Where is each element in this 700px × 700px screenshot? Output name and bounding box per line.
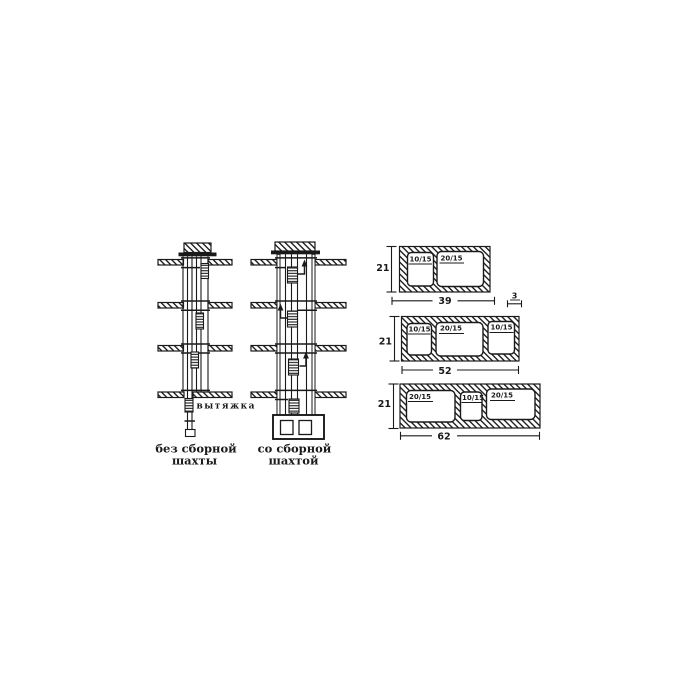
opening-size-label: 10/15 bbox=[410, 256, 432, 264]
dimension-height: 21 bbox=[379, 317, 400, 362]
shaft-cap-block bbox=[184, 243, 211, 253]
floor-slab bbox=[158, 260, 184, 266]
floor-slab bbox=[251, 346, 277, 352]
base-block-opening bbox=[299, 421, 312, 435]
opening-size-label: 20/15 bbox=[491, 392, 513, 400]
caption-with-shaft-line2: шахтой bbox=[269, 454, 319, 468]
shaft-cap-plate bbox=[271, 251, 320, 255]
exhaust-label: вытяжка bbox=[197, 402, 256, 412]
shaft-foot bbox=[186, 430, 196, 437]
dimension-width: 52 bbox=[402, 366, 519, 377]
duct-grille bbox=[201, 264, 209, 279]
ventilation-diagram-figure: вытяжка без сборной шахты bbox=[0, 0, 700, 700]
dimension-width: 39 bbox=[392, 296, 495, 307]
floor-slab bbox=[193, 392, 232, 398]
floor-slab bbox=[251, 260, 277, 266]
duct-grille bbox=[191, 352, 199, 368]
opening-size-label: 10/15 bbox=[491, 324, 513, 332]
dimension-height-label: 21 bbox=[376, 263, 389, 274]
floor-slab bbox=[251, 303, 277, 309]
caption-without-shaft-line2: шахты bbox=[172, 454, 218, 468]
floor-slab bbox=[315, 260, 346, 266]
vent-block-section-52: 10/15 20/15 10/15 21 52 bbox=[379, 317, 519, 377]
opening-size-label: 20/15 bbox=[409, 393, 431, 401]
duct-grille bbox=[288, 267, 298, 283]
dimension-height-label: 21 bbox=[379, 336, 392, 347]
duct-grille bbox=[196, 313, 204, 329]
floor-slab bbox=[208, 260, 232, 266]
wall-thickness-label: 3 bbox=[512, 291, 518, 300]
duct-grille bbox=[289, 399, 299, 413]
shaft-with-collection-duct-diagram: со сборной шахтой bbox=[251, 242, 346, 468]
opening-size-label: 10/15 bbox=[462, 394, 484, 402]
scanned-figure-page: вытяжка без сборной шахты bbox=[0, 0, 700, 700]
vent-block-section-39: 10/15 20/15 21 39 3 bbox=[376, 247, 521, 308]
shaft-cap-block bbox=[275, 242, 315, 251]
dimension-wall-thickness: 3 bbox=[508, 291, 522, 307]
floor-slab bbox=[315, 346, 346, 352]
floor-slab bbox=[158, 392, 184, 398]
dimension-height: 21 bbox=[378, 384, 399, 429]
opening-size-label: 10/15 bbox=[409, 326, 431, 334]
duct-grille bbox=[288, 311, 298, 327]
dimension-width: 62 bbox=[401, 432, 540, 443]
duct-grille bbox=[185, 399, 193, 413]
shaft-cap-plate bbox=[179, 253, 217, 257]
base-block-opening bbox=[281, 421, 294, 435]
floor-slab bbox=[315, 392, 346, 398]
vent-block-section-62: 20/15 10/15 20/15 21 62 bbox=[378, 384, 540, 443]
dimension-height-label: 21 bbox=[378, 399, 391, 410]
dimension-width-label: 62 bbox=[437, 432, 450, 443]
dimension-width-label: 52 bbox=[438, 366, 451, 377]
floor-slab bbox=[158, 346, 184, 352]
floor-slab bbox=[208, 303, 232, 309]
floor-slab bbox=[251, 392, 277, 398]
shaft-without-collection-duct-diagram: вытяжка без сборной шахты bbox=[155, 243, 256, 468]
opening-size-label: 20/15 bbox=[441, 255, 463, 263]
floor-slab bbox=[315, 303, 346, 309]
dimension-width-label: 39 bbox=[438, 296, 451, 307]
opening-size-label: 20/15 bbox=[440, 325, 462, 333]
dimension-height: 21 bbox=[376, 247, 396, 293]
floor-slab bbox=[158, 303, 184, 309]
floor-slab bbox=[208, 346, 232, 352]
duct-grille bbox=[289, 359, 299, 375]
